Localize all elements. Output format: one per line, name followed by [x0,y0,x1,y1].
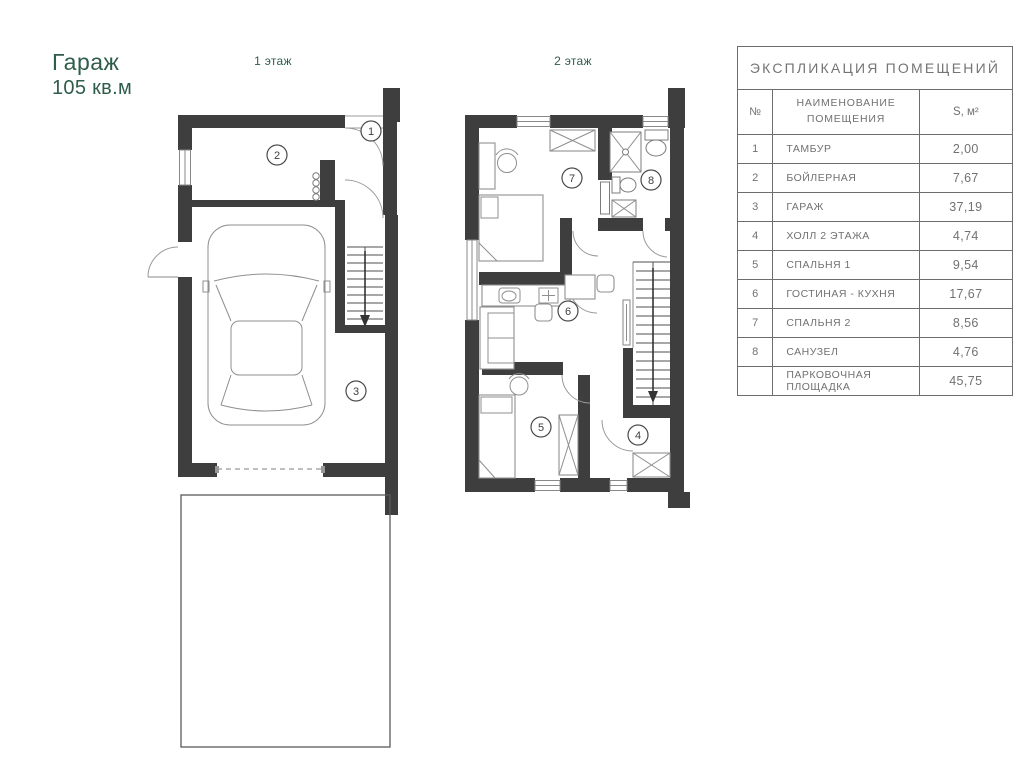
bed-icon [479,195,543,261]
kitchen-counter-icon [482,285,570,306]
svg-text:4: 4 [635,430,641,442]
cell-area: 37,19 [919,193,1012,222]
cell-num: 7 [738,309,773,338]
table-title-row: ЭКСПЛИКАЦИЯ ПОМЕЩЕНИЙ [738,47,1013,90]
parking-area-outline [181,495,390,747]
cell-name: ХОЛЛ 2 ЭТАЖА [773,222,919,251]
bed-icon [479,395,515,478]
cell-name: ТАМБУР [773,135,919,164]
cell-name: ГОСТИНАЯ - КУХНЯ [773,280,919,309]
staircase-down [347,247,383,327]
chair-icon [509,374,529,395]
cell-name: САНУЗЕЛ [773,338,919,367]
svg-text:3: 3 [353,386,359,398]
cell-area: 8,56 [919,309,1012,338]
table-row: 5СПАЛЬНЯ 19,54 [738,251,1013,280]
drawing-title: Гараж 105 кв.м [52,48,132,100]
svg-text:1: 1 [368,126,374,138]
cell-area: 17,67 [919,280,1012,309]
title-garage: Гараж [52,48,132,76]
cell-num: 8 [738,338,773,367]
title-area: 105 кв.м [52,76,132,100]
svg-text:2: 2 [274,150,280,162]
explication-body: 1ТАМБУР2,002БОЙЛЕРНАЯ7,673ГАРАЖ37,194ХОЛ… [738,135,1013,396]
radiator-icon [313,173,319,200]
cell-name: ГАРАЖ [773,193,919,222]
table-row: 2БОЙЛЕРНАЯ7,67 [738,164,1013,193]
wardrobe-icon [633,453,670,477]
staircase-down [633,262,670,405]
room-number-badge: 7 [562,168,582,188]
room-number-badge: 4 [628,425,648,445]
svg-text:7: 7 [569,173,575,185]
cell-area: 9,54 [919,251,1012,280]
svg-text:8: 8 [648,175,654,187]
tv-unit-icon [623,300,630,345]
desk-icon [479,143,495,189]
cell-num: 6 [738,280,773,309]
car-icon [203,225,330,425]
floor-plan-sheet: { "header": { "title_line1": "Гараж", "t… [0,0,1024,768]
table-row: 7СПАЛЬНЯ 28,56 [738,309,1013,338]
column-header-area: S, м² [919,90,1012,135]
door-swing-icon [643,231,667,257]
cell-num [738,367,773,396]
door-swing-icon [148,247,178,277]
shower-icon [610,132,641,172]
door-leaf-icon [601,182,610,214]
column-header-name: НАИМЕНОВАНИЕ ПОМЕЩЕНИЯ [773,90,919,135]
wardrobe-icon [550,130,595,151]
column-header-num: № [738,90,773,135]
svg-text:6: 6 [565,306,571,318]
cell-area: 4,74 [919,222,1012,251]
room-number-badge: 8 [641,170,661,190]
explication-table: ЭКСПЛИКАЦИЯ ПОМЕЩЕНИЙ № НАИМЕНОВАНИЕ ПОМ… [737,46,1013,396]
cell-area: 45,75 [919,367,1012,396]
room-number-badge: 6 [558,301,578,321]
washing-machine-icon [612,200,636,217]
wardrobe-icon [559,415,578,475]
cell-num: 3 [738,193,773,222]
door-swing-icon [345,180,383,218]
sink-icon [645,130,668,156]
room-number-badge: 1 [361,121,381,141]
sofa-icon [480,307,514,369]
table-title: ЭКСПЛИКАЦИЯ ПОМЕЩЕНИЙ [738,47,1013,90]
cell-area: 2,00 [919,135,1012,164]
cell-name: ПАРКОВОЧНАЯ ПЛОЩАДКА [773,367,919,396]
cell-area: 7,67 [919,164,1012,193]
room-number-badge: 3 [346,381,366,401]
table-row: 1ТАМБУР2,00 [738,135,1013,164]
table-row: 4ХОЛЛ 2 ЭТАЖА4,74 [738,222,1013,251]
cell-num: 2 [738,164,773,193]
cell-num: 4 [738,222,773,251]
toilet-icon [612,177,636,193]
chair-icon [597,275,614,292]
garage-door-icon [215,466,325,473]
svg-text:5: 5 [538,422,544,434]
door-swing-icon [573,231,598,256]
chair-icon [496,149,518,173]
cell-name: СПАЛЬНЯ 1 [773,251,919,280]
table-row: ПАРКОВОЧНАЯ ПЛОЩАДКА45,75 [738,367,1013,396]
cell-name: БОЙЛЕРНАЯ [773,164,919,193]
floor2-label: 2 этаж [538,54,608,68]
table-row: 8САНУЗЕЛ4,76 [738,338,1013,367]
cell-num: 1 [738,135,773,164]
floor1-label: 1 этаж [238,54,308,68]
floor1-walls [178,88,400,515]
cell-num: 5 [738,251,773,280]
floor1-plan: 1 2 3 [142,85,405,760]
cell-name: СПАЛЬНЯ 2 [773,309,919,338]
room-number-badge: 5 [531,417,551,437]
window-icon [180,150,191,185]
table-header-row: № НАИМЕНОВАНИЕ ПОМЕЩЕНИЯ S, м² [738,90,1013,135]
room-number-badge: 2 [267,145,287,165]
table-row: 3ГАРАЖ37,19 [738,193,1013,222]
floor2-plan: 7 8 6 5 4 [455,85,705,515]
chair-icon [535,304,552,321]
coffee-table-icon [565,275,595,299]
cell-area: 4,76 [919,338,1012,367]
table-row: 6ГОСТИНАЯ - КУХНЯ17,67 [738,280,1013,309]
